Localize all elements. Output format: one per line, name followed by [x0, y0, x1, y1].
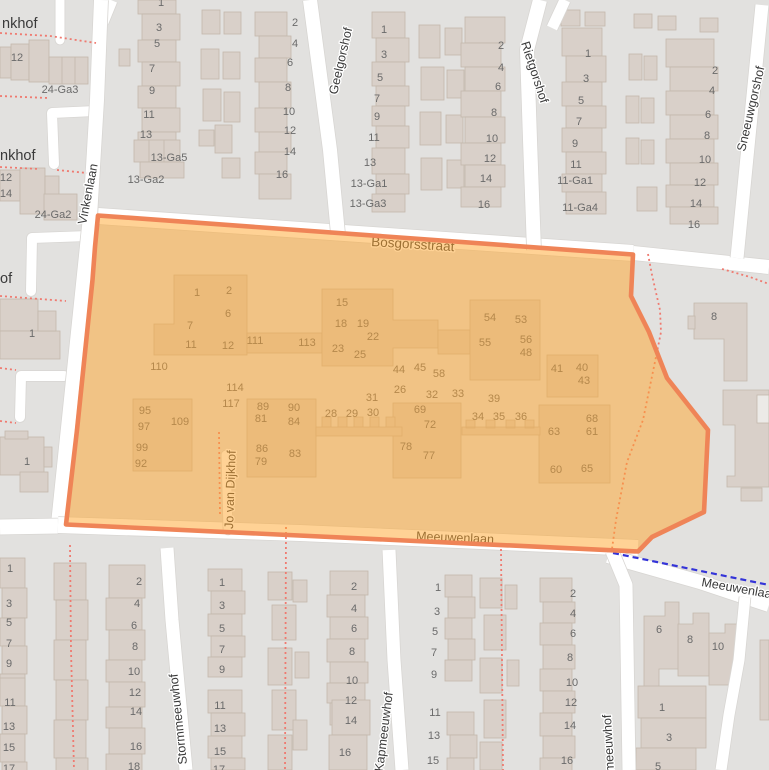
svg-text:16: 16 — [561, 755, 573, 767]
svg-text:16: 16 — [339, 747, 351, 759]
svg-text:16: 16 — [276, 169, 288, 181]
svg-text:12: 12 — [484, 153, 496, 165]
svg-text:11: 11 — [214, 700, 225, 712]
svg-text:12: 12 — [11, 52, 23, 64]
svg-text:8: 8 — [711, 311, 717, 323]
svg-text:1: 1 — [381, 24, 387, 36]
svg-text:8: 8 — [132, 641, 138, 653]
svg-text:12: 12 — [694, 177, 706, 189]
svg-text:5: 5 — [432, 626, 438, 638]
svg-text:14: 14 — [0, 188, 12, 200]
svg-text:9: 9 — [149, 85, 155, 97]
svg-text:4: 4 — [134, 598, 140, 610]
svg-text:14: 14 — [345, 715, 357, 727]
svg-text:2: 2 — [498, 40, 504, 52]
svg-text:14: 14 — [130, 706, 142, 718]
svg-text:3: 3 — [219, 600, 225, 612]
svg-text:14: 14 — [480, 173, 492, 185]
svg-text:12: 12 — [129, 687, 141, 699]
svg-text:10: 10 — [699, 154, 711, 166]
svg-text:5: 5 — [6, 617, 12, 629]
svg-text:6: 6 — [656, 624, 662, 636]
svg-text:1: 1 — [435, 582, 441, 594]
svg-text:2: 2 — [712, 65, 718, 77]
svg-text:11-Ga4: 11-Ga4 — [562, 202, 598, 214]
svg-text:13-Ga2: 13-Ga2 — [128, 174, 165, 186]
svg-text:12: 12 — [565, 697, 577, 709]
svg-text:10: 10 — [486, 133, 498, 145]
svg-text:4: 4 — [351, 603, 357, 615]
svg-text:17: 17 — [213, 764, 225, 770]
svg-text:7: 7 — [374, 93, 380, 105]
svg-text:2: 2 — [570, 588, 576, 600]
svg-text:2: 2 — [351, 581, 357, 593]
svg-text:1: 1 — [659, 702, 665, 714]
svg-text:4: 4 — [709, 85, 715, 97]
svg-text:6: 6 — [570, 628, 576, 640]
svg-text:nkhof: nkhof — [0, 148, 36, 164]
svg-text:9: 9 — [572, 138, 578, 150]
svg-text:5: 5 — [219, 623, 225, 635]
svg-text:5: 5 — [377, 72, 383, 84]
svg-text:1: 1 — [585, 48, 591, 60]
svg-text:12: 12 — [0, 172, 12, 184]
svg-text:24-Ga2: 24-Ga2 — [35, 209, 72, 221]
svg-text:10: 10 — [566, 677, 578, 689]
svg-text:13: 13 — [3, 721, 15, 733]
svg-text:8: 8 — [687, 634, 693, 646]
svg-text:2: 2 — [136, 576, 142, 588]
svg-text:11: 11 — [570, 159, 581, 171]
svg-text:13-Ga1: 13-Ga1 — [351, 178, 388, 190]
svg-text:6: 6 — [287, 57, 293, 69]
svg-text:3: 3 — [156, 22, 162, 34]
svg-text:6: 6 — [131, 620, 137, 632]
svg-text:15: 15 — [427, 755, 439, 767]
svg-text:5: 5 — [655, 761, 661, 770]
svg-text:3: 3 — [666, 732, 672, 744]
svg-text:15: 15 — [214, 746, 226, 758]
svg-text:12: 12 — [345, 695, 357, 707]
svg-text:10: 10 — [346, 675, 358, 687]
svg-text:6: 6 — [705, 109, 711, 121]
svg-text:4: 4 — [498, 62, 504, 74]
svg-text:12: 12 — [284, 125, 296, 137]
svg-text:13: 13 — [214, 723, 226, 735]
svg-text:7: 7 — [576, 116, 582, 128]
svg-text:7: 7 — [149, 63, 155, 75]
svg-text:1: 1 — [29, 328, 35, 340]
svg-text:3: 3 — [434, 606, 440, 618]
svg-text:4: 4 — [292, 38, 298, 50]
svg-text:11: 11 — [4, 697, 15, 709]
svg-text:8: 8 — [349, 646, 355, 658]
svg-text:13: 13 — [428, 730, 440, 742]
svg-text:24-Ga3: 24-Ga3 — [42, 84, 79, 96]
svg-text:16: 16 — [130, 741, 142, 753]
svg-text:1: 1 — [7, 563, 13, 575]
svg-text:10: 10 — [712, 641, 724, 653]
svg-text:11: 11 — [143, 109, 154, 121]
svg-text:8: 8 — [285, 82, 291, 94]
svg-text:11-Ga1: 11-Ga1 — [557, 175, 593, 187]
svg-text:1: 1 — [219, 577, 225, 589]
svg-text:6: 6 — [495, 81, 501, 93]
svg-text:11: 11 — [368, 132, 379, 144]
svg-text:7: 7 — [219, 644, 225, 656]
svg-text:10: 10 — [283, 106, 295, 118]
svg-text:13: 13 — [140, 129, 152, 141]
svg-text:13-Ga5: 13-Ga5 — [151, 152, 188, 164]
svg-text:7: 7 — [431, 647, 437, 659]
svg-text:13: 13 — [364, 157, 376, 169]
svg-text:14: 14 — [284, 146, 296, 158]
svg-text:of: of — [0, 271, 13, 287]
svg-text:15: 15 — [3, 742, 15, 754]
svg-text:9: 9 — [374, 111, 380, 123]
svg-text:14: 14 — [690, 198, 702, 210]
svg-text:1: 1 — [24, 456, 30, 468]
svg-text:2: 2 — [292, 17, 298, 29]
svg-text:17: 17 — [3, 763, 15, 770]
svg-text:9: 9 — [219, 664, 225, 676]
svg-text:14: 14 — [564, 720, 576, 732]
svg-text:9: 9 — [6, 658, 12, 670]
svg-text:3: 3 — [6, 598, 12, 610]
svg-text:16: 16 — [478, 199, 490, 211]
svg-text:5: 5 — [154, 38, 160, 50]
svg-text:13-Ga3: 13-Ga3 — [350, 198, 387, 210]
svg-text:nkhof: nkhof — [2, 16, 38, 32]
svg-text:4: 4 — [570, 608, 576, 620]
svg-text:6: 6 — [351, 623, 357, 635]
svg-text:8: 8 — [491, 107, 497, 119]
svg-text:9: 9 — [431, 669, 437, 681]
svg-text:5: 5 — [578, 95, 584, 107]
svg-text:8: 8 — [704, 130, 710, 142]
svg-text:3: 3 — [583, 73, 589, 85]
svg-text:7: 7 — [6, 638, 12, 650]
svg-text:1: 1 — [158, 0, 164, 9]
svg-text:8: 8 — [567, 652, 573, 664]
svg-text:10: 10 — [128, 666, 140, 678]
svg-text:3: 3 — [381, 49, 387, 61]
svg-text:18: 18 — [128, 761, 140, 770]
svg-text:11: 11 — [429, 707, 440, 719]
svg-text:16: 16 — [688, 219, 700, 231]
